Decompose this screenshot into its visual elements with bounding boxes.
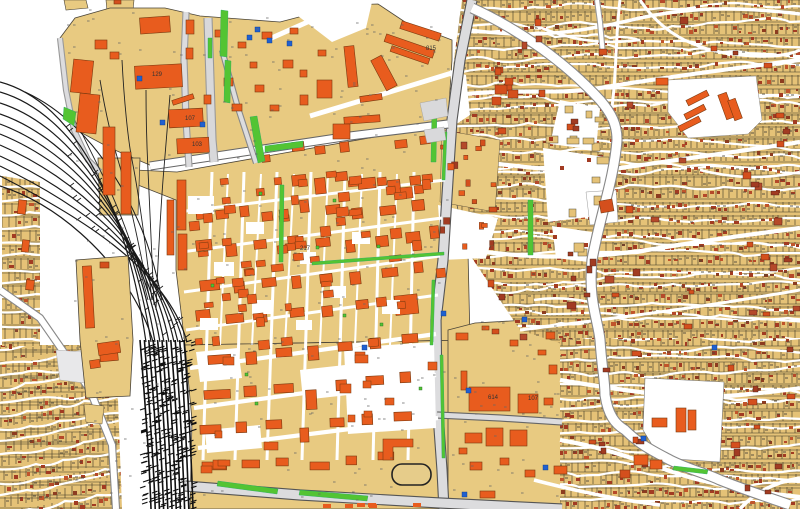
- svg-text:815: 815: [426, 46, 437, 52]
- svg-text:107: 107: [185, 116, 196, 122]
- svg-text:129: 129: [152, 72, 163, 78]
- svg-text:107: 107: [528, 396, 539, 402]
- svg-text:103: 103: [192, 142, 203, 148]
- svg-text:614: 614: [488, 395, 499, 401]
- svg-text:217: 217: [300, 246, 311, 252]
